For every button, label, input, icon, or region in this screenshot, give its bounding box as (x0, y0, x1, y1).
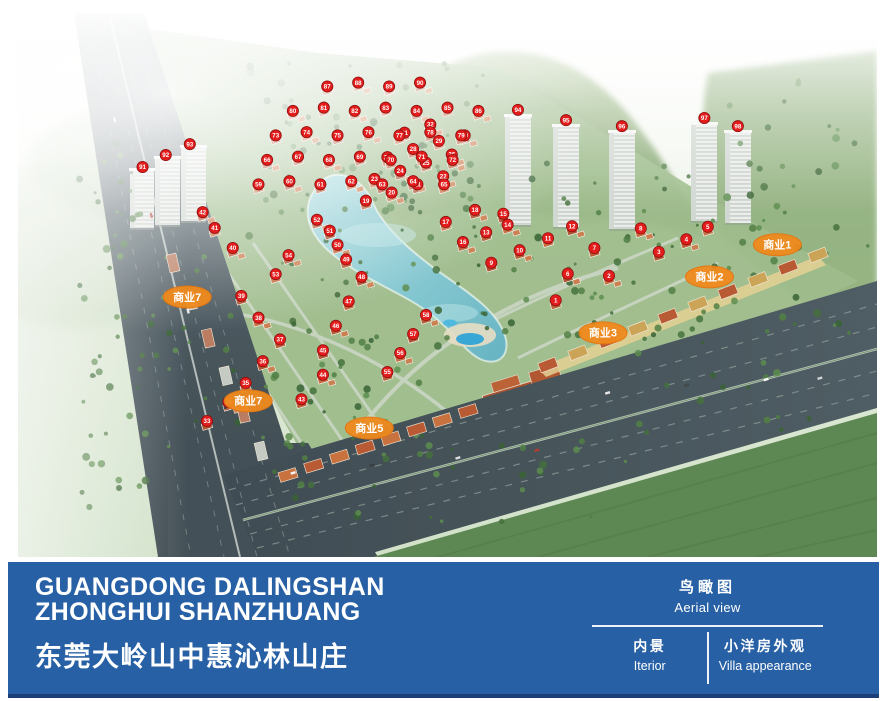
current-view-en: Aerial view (592, 600, 823, 615)
svg-text:88: 88 (355, 80, 362, 87)
unit-marker-6: 6 (562, 268, 573, 279)
unit-marker-78: 78 (425, 127, 436, 138)
unit-marker-75: 75 (332, 130, 343, 141)
svg-text:6: 6 (566, 271, 570, 278)
svg-text:92: 92 (162, 152, 169, 159)
svg-text:37: 37 (277, 337, 284, 344)
svg-text:13: 13 (483, 229, 490, 236)
unit-marker-94: 94 (512, 104, 523, 115)
svg-text:53: 53 (272, 271, 279, 278)
svg-text:61: 61 (317, 182, 324, 189)
svg-text:5: 5 (706, 224, 710, 231)
svg-text:62: 62 (348, 178, 355, 185)
unit-marker-84: 84 (411, 105, 422, 116)
unit-marker-96: 96 (616, 121, 627, 132)
unit-marker-14: 14 (502, 219, 513, 230)
svg-text:59: 59 (255, 182, 262, 189)
svg-text:86: 86 (475, 108, 482, 115)
svg-text:49: 49 (343, 257, 350, 264)
svg-text:40: 40 (229, 245, 236, 252)
project-title-cn: 东莞大岭山中惠沁林山庄 (35, 635, 385, 674)
unit-marker-58: 58 (420, 309, 431, 320)
unit-marker-87: 87 (322, 81, 333, 92)
unit-marker-76: 76 (363, 127, 374, 138)
svg-text:商业5: 商业5 (355, 421, 383, 435)
svg-text:41: 41 (211, 225, 218, 232)
unit-marker-12: 12 (566, 221, 577, 232)
svg-text:14: 14 (504, 222, 511, 229)
svg-text:71: 71 (418, 154, 425, 161)
unit-marker-77: 77 (394, 130, 405, 141)
svg-text:35: 35 (242, 380, 249, 387)
unit-marker-44: 44 (317, 369, 328, 380)
svg-text:97: 97 (701, 115, 708, 122)
svg-text:11: 11 (545, 235, 552, 242)
commercial-label: 商业3 (579, 322, 627, 344)
svg-text:67: 67 (295, 154, 302, 161)
svg-text:54: 54 (285, 252, 292, 259)
project-title-block: GUANGDONG DALINGSHAN ZHONGHUI SHANZHUANG… (35, 575, 385, 674)
footer-accent-strip (8, 694, 879, 698)
svg-text:95: 95 (563, 117, 570, 124)
unit-marker-47: 47 (343, 296, 354, 307)
unit-marker-24: 24 (395, 165, 406, 176)
svg-text:66: 66 (264, 157, 271, 164)
svg-text:8: 8 (639, 226, 643, 233)
svg-text:91: 91 (139, 164, 146, 171)
svg-text:93: 93 (186, 141, 193, 148)
unit-marker-72: 72 (447, 154, 458, 165)
unit-marker-48: 48 (356, 271, 367, 282)
unit-marker-16: 16 (457, 236, 468, 247)
svg-text:77: 77 (396, 133, 403, 140)
commercial-label: 商业7 (224, 390, 272, 412)
unit-marker-65: 65 (438, 179, 449, 190)
unit-marker-15: 15 (498, 208, 509, 219)
svg-text:94: 94 (514, 107, 521, 114)
project-title-en-line2: ZHONGHUI SHANZHUANG (35, 600, 385, 625)
aerial-rendering: 1234567891011121314151617181920212223242… (18, 13, 877, 557)
commercial-label: 商业7 (163, 286, 211, 308)
unit-marker-66: 66 (262, 154, 273, 165)
unit-marker-88: 88 (353, 77, 364, 88)
svg-text:63: 63 (379, 182, 386, 189)
panel-divider-vertical (707, 632, 709, 684)
unit-marker-98: 98 (732, 121, 743, 132)
svg-text:70: 70 (387, 157, 394, 164)
unit-marker-43: 43 (296, 394, 307, 405)
svg-text:商业7: 商业7 (234, 394, 262, 408)
svg-text:47: 47 (345, 299, 352, 306)
svg-text:98: 98 (734, 123, 741, 130)
unit-marker-2: 2 (603, 270, 614, 281)
svg-text:38: 38 (255, 315, 262, 322)
svg-text:商业3: 商业3 (589, 326, 617, 340)
unit-marker-85: 85 (442, 102, 453, 113)
unit-marker-17: 17 (440, 216, 451, 227)
svg-text:46: 46 (332, 323, 339, 330)
svg-text:75: 75 (334, 133, 341, 140)
unit-marker-46: 46 (330, 320, 341, 331)
unit-marker-64: 64 (408, 175, 419, 186)
svg-text:33: 33 (204, 418, 211, 425)
svg-text:80: 80 (289, 108, 296, 115)
svg-text:78: 78 (427, 129, 434, 136)
svg-text:商业7: 商业7 (173, 290, 201, 304)
unit-marker-91: 91 (137, 161, 148, 172)
svg-text:96: 96 (618, 123, 625, 130)
svg-text:19: 19 (362, 198, 369, 205)
unit-marker-37: 37 (274, 334, 285, 345)
svg-text:81: 81 (320, 105, 327, 112)
unit-marker-86: 86 (473, 105, 484, 116)
unit-marker-41: 41 (209, 222, 220, 233)
unit-marker-90: 90 (414, 77, 425, 88)
unit-marker-93: 93 (184, 139, 195, 150)
svg-text:24: 24 (397, 168, 404, 175)
panel-cells: 内景 Iterior 小洋房外观 Villa appearance (592, 627, 823, 692)
svg-text:52: 52 (313, 217, 320, 224)
svg-text:79: 79 (458, 133, 465, 140)
panel-item-interior-en: Iterior (592, 659, 708, 673)
svg-text:50: 50 (334, 242, 341, 249)
unit-marker-36: 36 (257, 356, 268, 367)
unit-marker-3: 3 (653, 246, 664, 257)
current-view-label: 鸟瞰图 Aerial view (592, 576, 823, 615)
svg-text:60: 60 (286, 178, 293, 185)
svg-text:20: 20 (388, 190, 395, 197)
unit-marker-49: 49 (341, 254, 352, 265)
unit-marker-42: 42 (197, 207, 208, 218)
unit-marker-79: 79 (456, 130, 467, 141)
current-view-cn: 鸟瞰图 (592, 576, 823, 597)
aerial-photo: 1234567891011121314151617181920212223242… (18, 13, 877, 557)
svg-text:16: 16 (460, 239, 467, 246)
unit-marker-63: 63 (377, 179, 388, 190)
panel-item-interior-cn: 内景 (592, 636, 708, 656)
unit-marker-62: 62 (346, 175, 357, 186)
svg-text:74: 74 (303, 129, 310, 136)
svg-text:72: 72 (449, 157, 456, 164)
svg-text:83: 83 (382, 105, 389, 112)
svg-text:55: 55 (384, 369, 391, 376)
unit-marker-50: 50 (332, 239, 343, 250)
unit-marker-92: 92 (160, 149, 171, 160)
haze-wash (18, 13, 877, 557)
commercial-label: 商业1 (753, 234, 801, 256)
svg-text:51: 51 (326, 228, 333, 235)
footer-bar: GUANGDONG DALINGSHAN ZHONGHUI SHANZHUANG… (8, 562, 879, 694)
unit-marker-35: 35 (240, 377, 251, 388)
unit-marker-73: 73 (270, 130, 281, 141)
unit-marker-51: 51 (324, 225, 335, 236)
svg-text:17: 17 (442, 219, 449, 226)
svg-text:64: 64 (410, 178, 417, 185)
svg-text:2: 2 (607, 273, 611, 280)
svg-text:43: 43 (298, 396, 305, 403)
unit-marker-54: 54 (283, 249, 294, 260)
svg-text:45: 45 (319, 347, 326, 354)
svg-text:85: 85 (444, 105, 451, 112)
svg-text:18: 18 (472, 207, 479, 214)
svg-text:90: 90 (417, 80, 424, 87)
svg-text:65: 65 (441, 182, 448, 189)
unit-marker-1: 1 (550, 295, 561, 306)
unit-marker-7: 7 (589, 242, 600, 253)
view-selector-panel: 鸟瞰图 Aerial view 内景 Iterior 小洋房外观 Villa a… (592, 576, 823, 692)
commercial-label: 商业2 (685, 266, 733, 288)
panel-item-villa-appearance[interactable]: 小洋房外观 Villa appearance (708, 636, 824, 692)
svg-text:73: 73 (272, 133, 279, 140)
svg-text:28: 28 (410, 146, 417, 153)
unit-marker-38: 38 (253, 312, 264, 323)
unit-marker-4: 4 (681, 234, 692, 245)
svg-text:7: 7 (593, 245, 597, 252)
unit-marker-61: 61 (315, 179, 326, 190)
unit-marker-57: 57 (408, 328, 419, 339)
unit-marker-69: 69 (354, 151, 365, 162)
panel-item-villa-cn: 小洋房外观 (708, 636, 824, 656)
svg-text:12: 12 (569, 223, 576, 230)
unit-marker-45: 45 (317, 345, 328, 356)
unit-marker-52: 52 (311, 214, 322, 225)
unit-marker-81: 81 (318, 102, 329, 113)
svg-text:4: 4 (685, 237, 689, 244)
unit-marker-95: 95 (560, 115, 571, 126)
unit-marker-83: 83 (380, 102, 391, 113)
unit-marker-39: 39 (236, 290, 247, 301)
unit-marker-56: 56 (395, 347, 406, 358)
svg-text:15: 15 (500, 211, 507, 218)
svg-text:58: 58 (423, 312, 430, 319)
unit-marker-13: 13 (481, 227, 492, 238)
svg-text:76: 76 (365, 129, 372, 136)
unit-marker-33: 33 (201, 415, 212, 426)
svg-text:商业2: 商业2 (695, 270, 723, 284)
svg-text:84: 84 (413, 108, 420, 115)
unit-marker-20: 20 (386, 187, 397, 198)
unit-marker-10: 10 (514, 245, 525, 256)
svg-text:商业1: 商业1 (763, 238, 791, 252)
unit-marker-29: 29 (433, 135, 444, 146)
unit-marker-40: 40 (227, 242, 238, 253)
svg-text:89: 89 (386, 84, 393, 91)
unit-marker-60: 60 (284, 175, 295, 186)
svg-text:48: 48 (358, 274, 365, 281)
svg-text:69: 69 (356, 154, 363, 161)
svg-text:44: 44 (319, 372, 326, 379)
unit-marker-70: 70 (385, 154, 396, 165)
svg-text:56: 56 (397, 350, 404, 357)
svg-text:10: 10 (516, 247, 523, 254)
unit-marker-82: 82 (349, 105, 360, 116)
commercial-label: 商业5 (345, 417, 393, 439)
svg-text:68: 68 (326, 157, 333, 164)
panel-item-villa-en: Villa appearance (708, 659, 824, 673)
svg-text:29: 29 (435, 138, 442, 145)
panel-item-interior[interactable]: 内景 Iterior (592, 636, 708, 692)
svg-text:36: 36 (259, 358, 266, 365)
unit-marker-5: 5 (702, 221, 713, 232)
svg-text:82: 82 (351, 108, 358, 115)
svg-text:9: 9 (490, 260, 494, 267)
svg-text:57: 57 (410, 331, 417, 338)
svg-text:3: 3 (657, 249, 661, 256)
unit-marker-89: 89 (383, 81, 394, 92)
unit-marker-68: 68 (323, 154, 334, 165)
unit-marker-59: 59 (253, 179, 264, 190)
svg-text:42: 42 (199, 209, 206, 216)
svg-text:39: 39 (238, 293, 245, 300)
unit-marker-53: 53 (270, 269, 281, 280)
unit-marker-19: 19 (360, 195, 371, 206)
project-title-en-line1: GUANGDONG DALINGSHAN (35, 575, 385, 600)
unit-marker-67: 67 (292, 151, 303, 162)
svg-text:87: 87 (324, 84, 331, 91)
unit-marker-55: 55 (382, 366, 393, 377)
unit-marker-74: 74 (301, 127, 312, 138)
unit-marker-18: 18 (469, 204, 480, 215)
svg-text:1: 1 (554, 297, 558, 304)
unit-marker-11: 11 (542, 233, 553, 244)
unit-marker-9: 9 (486, 257, 497, 268)
unit-marker-80: 80 (287, 105, 298, 116)
unit-marker-97: 97 (699, 112, 710, 123)
unit-marker-71: 71 (416, 151, 427, 162)
unit-marker-8: 8 (635, 223, 646, 234)
